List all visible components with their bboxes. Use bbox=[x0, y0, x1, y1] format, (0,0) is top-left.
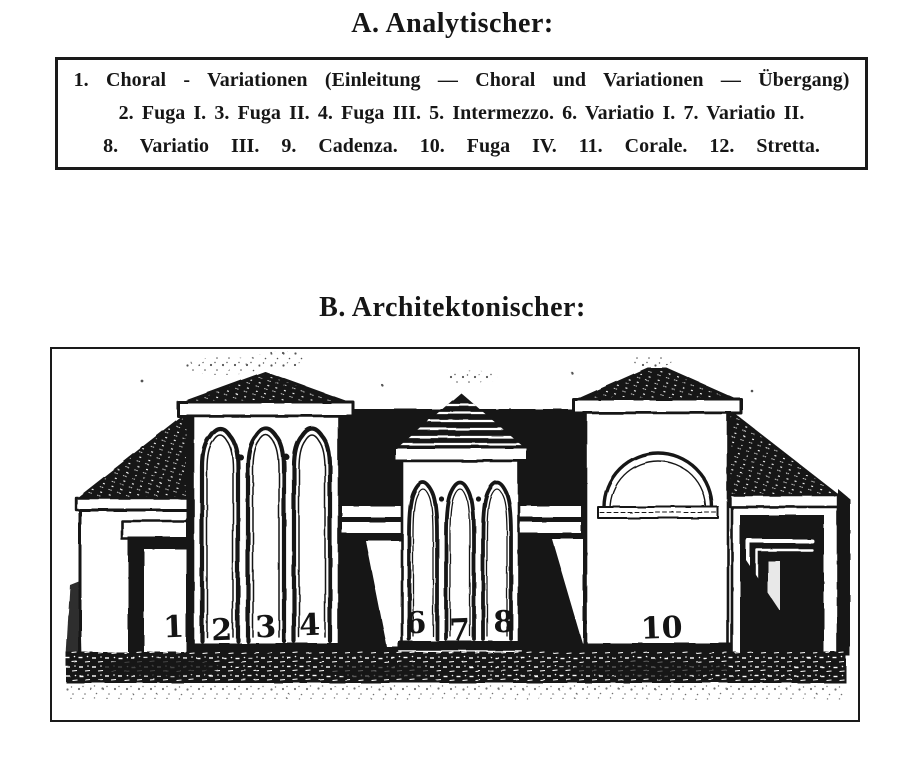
right-wing bbox=[732, 489, 850, 656]
figure-number-3: 3 bbox=[255, 610, 277, 646]
analytic-line-2: 2. Fuga I. 3. Fuga II. 4. Fuga III. 5. I… bbox=[66, 97, 857, 130]
section-b-title: B. Architektonischer: bbox=[0, 292, 905, 324]
analytic-line-1: 1. Choral - Variationen (Einleitung — Ch… bbox=[66, 64, 857, 97]
scanned-book-page: { "page": { "paper_color": "#ffffff", "i… bbox=[0, 0, 905, 762]
right-roof bbox=[730, 411, 838, 507]
left-roof bbox=[76, 409, 192, 510]
section-a-title: A. Analytischer: bbox=[0, 8, 905, 40]
analytic-list-box: 1. Choral - Variationen (Einleitung — Ch… bbox=[55, 57, 868, 170]
ground bbox=[66, 652, 846, 699]
figure-number-1: 1 bbox=[163, 610, 185, 646]
figure-number-10: 10 bbox=[640, 610, 683, 646]
figure-number-7: 7 bbox=[449, 613, 471, 649]
analytic-line-3: 8. Variatio III. 9. Cadenza. 10. Fuga IV… bbox=[66, 130, 857, 163]
figure-number-4: 4 bbox=[299, 608, 321, 644]
architectural-figure-box: 123467810 bbox=[50, 347, 860, 722]
figure-number-8: 8 bbox=[493, 605, 515, 641]
architectural-sketch: 123467810 bbox=[52, 349, 858, 720]
figure-number-6: 6 bbox=[405, 606, 427, 642]
figure-number-2: 2 bbox=[211, 613, 233, 649]
